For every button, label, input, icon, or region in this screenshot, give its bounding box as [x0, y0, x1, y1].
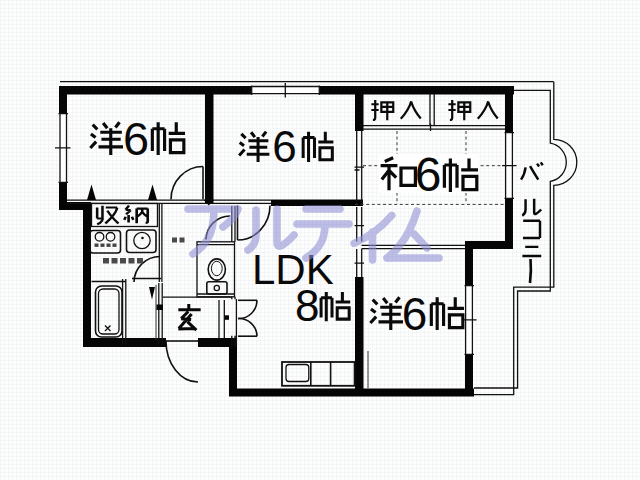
svg-text:6: 6 — [402, 288, 428, 340]
svg-text:6: 6 — [415, 148, 442, 201]
svg-text:6: 6 — [123, 112, 149, 165]
svg-text:6: 6 — [272, 122, 296, 171]
svg-text:LDK: LDK — [252, 246, 334, 293]
svg-text:8: 8 — [295, 281, 319, 330]
